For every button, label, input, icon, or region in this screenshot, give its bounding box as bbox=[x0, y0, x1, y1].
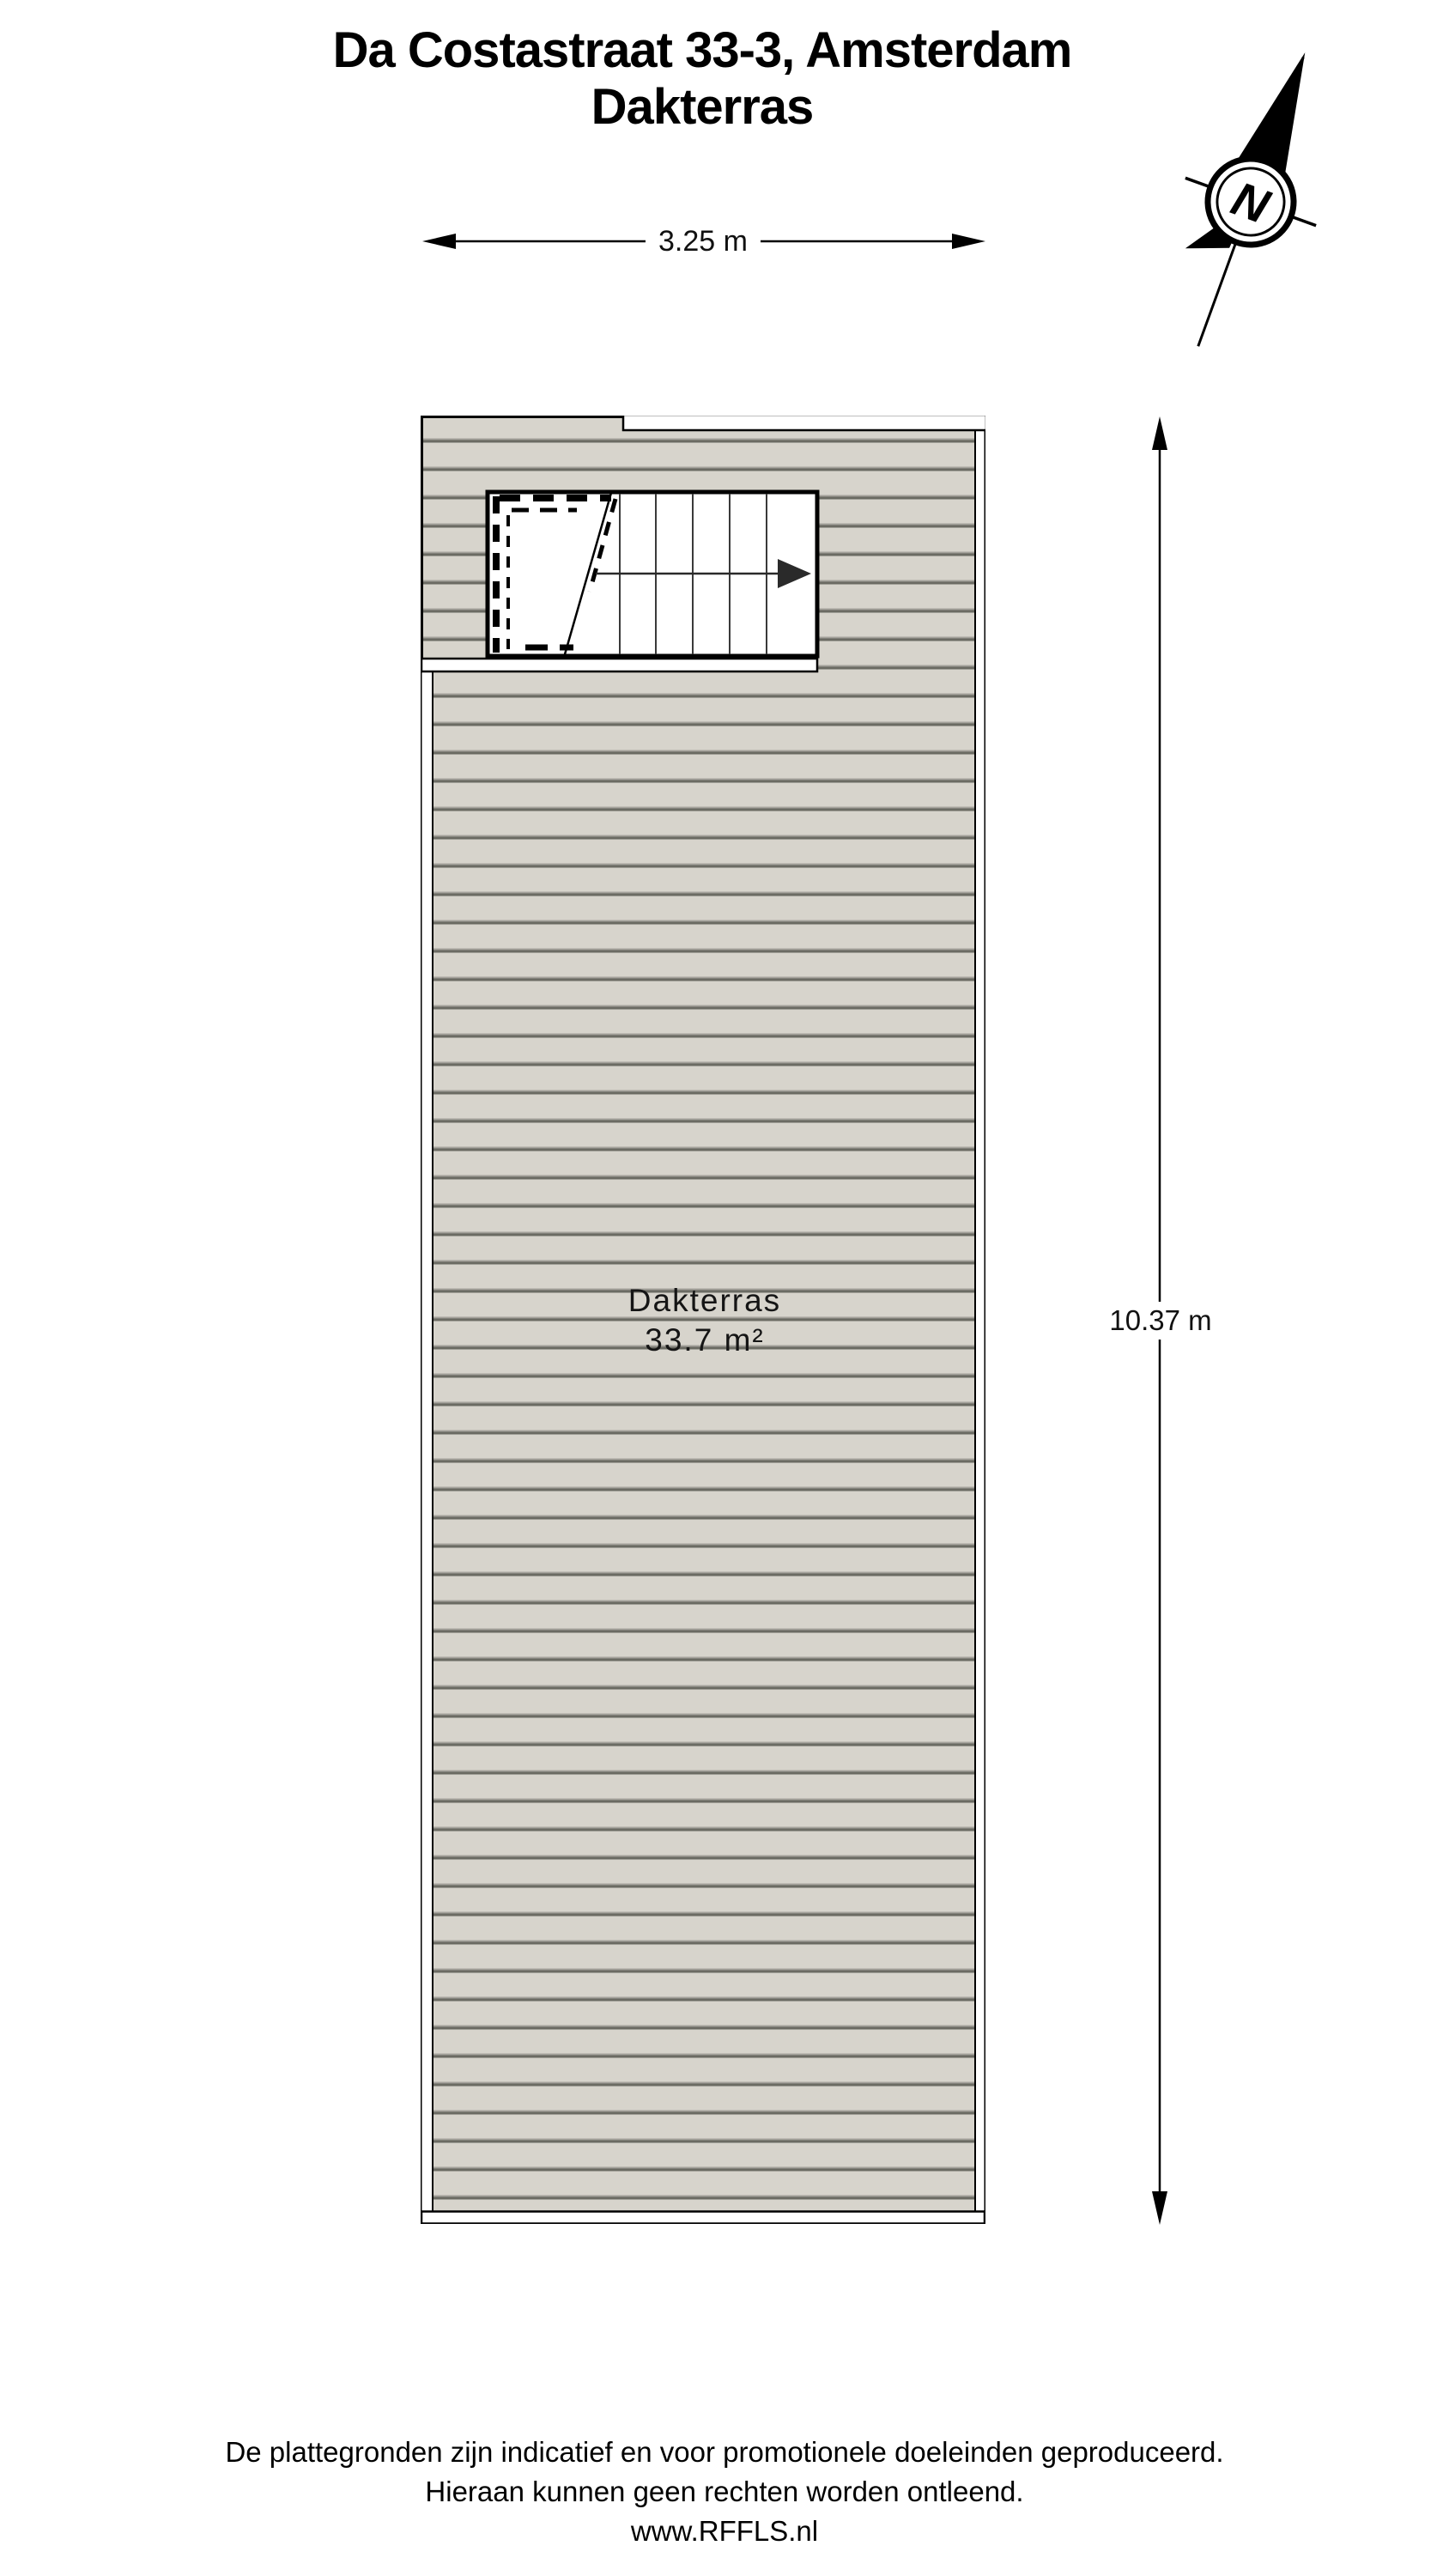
stair-railing-band bbox=[421, 659, 817, 671]
arrowhead-top bbox=[1152, 416, 1167, 450]
arrowhead-right bbox=[952, 234, 985, 249]
room-name: Dakterras bbox=[490, 1281, 919, 1321]
arrowhead-bottom bbox=[1152, 2191, 1167, 2225]
room-label: Dakterras 33.7 m² bbox=[490, 1281, 919, 1360]
width-dimension-label: 3.25 m bbox=[646, 222, 761, 260]
bottom-railing-strip bbox=[421, 2212, 985, 2224]
disclaimer-line2: Hieraan kunnen geen rechten worden ontle… bbox=[0, 2472, 1449, 2512]
compass-north-icon: N bbox=[1161, 36, 1341, 362]
right-railing-strip bbox=[975, 428, 985, 2213]
left-railing-strip bbox=[421, 659, 433, 2212]
disclaimer: De plattegronden zijn indicatief en voor… bbox=[0, 2433, 1449, 2551]
arrowhead-left bbox=[422, 234, 456, 249]
disclaimer-website: www.RFFLS.nl bbox=[0, 2512, 1449, 2551]
staircase bbox=[488, 492, 817, 656]
top-railing-strip bbox=[623, 416, 985, 430]
height-dimension-label: 10.37 m bbox=[1097, 1302, 1224, 1340]
disclaimer-line1: De plattegronden zijn indicatief en voor… bbox=[0, 2433, 1449, 2472]
room-area: 33.7 m² bbox=[490, 1321, 919, 1360]
